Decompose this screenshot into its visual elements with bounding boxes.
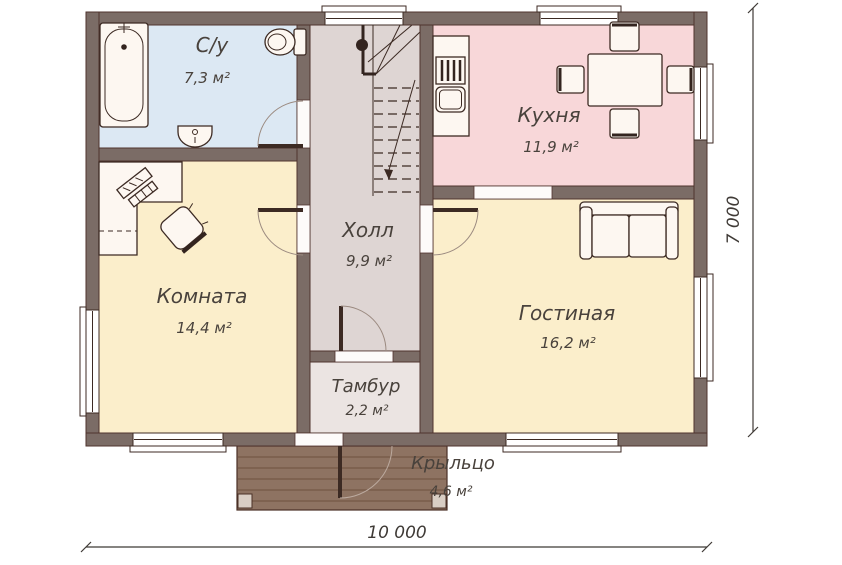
room-area-room: 14,4 м² <box>176 319 232 337</box>
bathtub-icon <box>100 23 148 127</box>
wall-bathroom-room <box>99 148 297 161</box>
window-icon-top-kitchen <box>537 6 621 25</box>
door-opening-bathroom <box>297 100 310 148</box>
door-opening-room <box>297 205 310 253</box>
toilet-icon <box>265 29 306 55</box>
window-icon-bottom-living <box>503 433 621 452</box>
chair-icon-right <box>667 66 694 93</box>
room-label-living: Гостиная <box>519 301 615 325</box>
room-area-kitchen: 11,9 м² <box>523 138 579 156</box>
kitchen-sink-icon <box>436 87 465 112</box>
room-label-tambour: Тамбур <box>332 376 401 397</box>
window-icon-right-kitchen <box>694 64 713 143</box>
sofa-icon <box>580 202 678 259</box>
dimension-height-label: 7 000 <box>724 196 744 245</box>
floor-plan: С/у 7,3 м² Кухня 11,9 м² Холл 9,9 м² Ком… <box>0 0 842 565</box>
chair-icon-bottom <box>610 109 639 138</box>
porch-post-left <box>238 494 252 508</box>
room-label-kitchen: Кухня <box>518 103 581 127</box>
window-icon-bottom-room <box>130 433 226 452</box>
room-label-porch: Крыльцо <box>411 453 495 474</box>
room-area-bathroom: 7,3 м² <box>184 69 230 87</box>
window-icon-left-room <box>80 307 99 416</box>
window-icon-top-hall <box>322 6 406 25</box>
window-icon-right-living <box>694 274 713 381</box>
room-area-living: 16,2 м² <box>540 334 596 352</box>
door-opening-living <box>420 205 433 253</box>
room-label-hall: Холл <box>341 218 394 242</box>
chair-icon-left <box>557 66 584 93</box>
stove-icon <box>436 57 465 84</box>
room-area-tambour: 2,2 м² <box>346 403 389 419</box>
dimension-width-label: 10 000 <box>367 523 426 543</box>
room-area-hall: 9,9 м² <box>346 252 392 270</box>
stair-newel-post <box>356 39 368 51</box>
wall-kitchen-living <box>433 186 694 199</box>
door-opening-entrance <box>295 433 343 446</box>
room-floor-hall <box>304 18 427 358</box>
room-label-room: Комната <box>157 284 248 308</box>
chair-icon-top <box>610 22 639 51</box>
door-opening-tambour <box>335 351 393 362</box>
kitchen-counter <box>433 36 469 136</box>
passage-kitchen-living <box>474 186 552 199</box>
room-area-porch: 4,6 м² <box>430 484 473 500</box>
dimension-height: 7 000 <box>724 3 758 437</box>
floor-plan-page: С/у 7,3 м² Кухня 11,9 м² Холл 9,9 м² Ком… <box>0 0 842 565</box>
room-label-bathroom: С/у <box>196 33 230 57</box>
dimension-width: 10 000 <box>81 523 712 552</box>
